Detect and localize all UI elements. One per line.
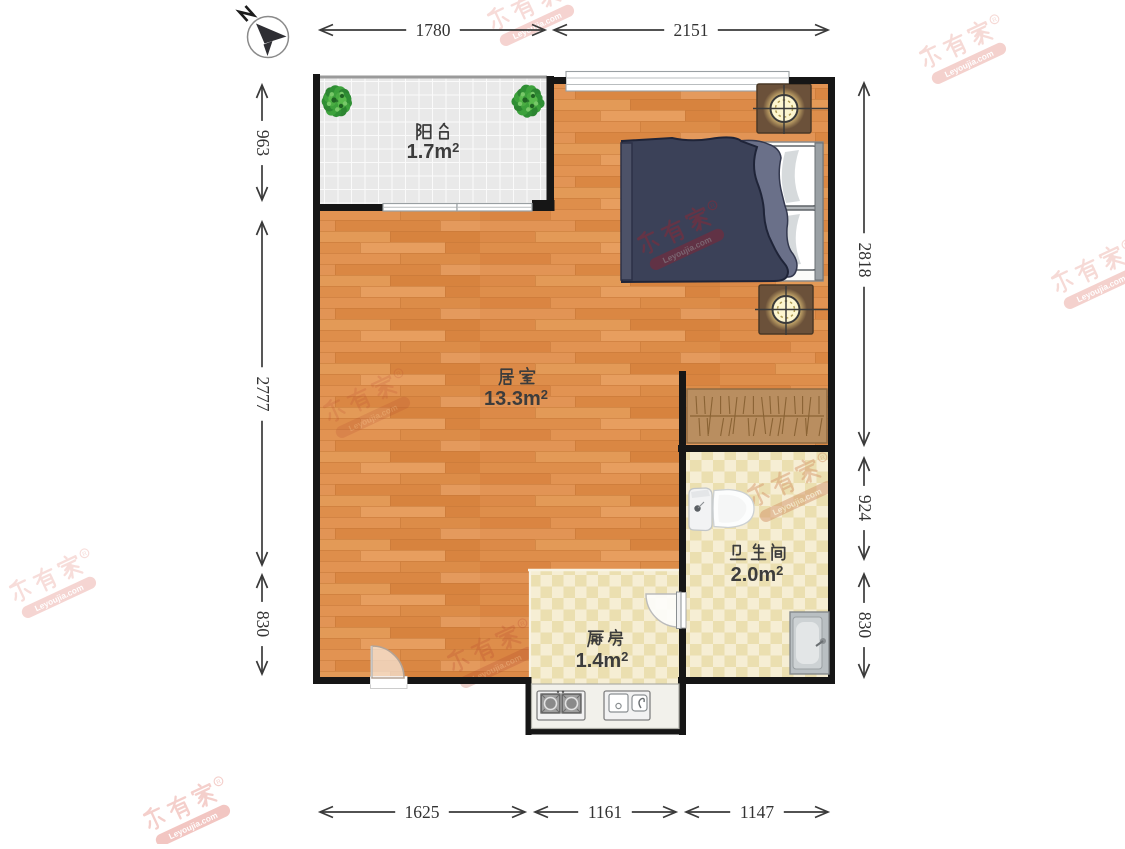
- svg-text:1161: 1161: [588, 802, 622, 822]
- svg-text:1625: 1625: [405, 802, 440, 822]
- svg-text:830: 830: [253, 611, 273, 638]
- svg-text:1780: 1780: [416, 20, 451, 40]
- svg-text:2777: 2777: [253, 377, 273, 412]
- svg-text:2151: 2151: [674, 20, 709, 40]
- svg-text:13.3m2: 13.3m2: [484, 387, 548, 410]
- svg-text:1147: 1147: [740, 802, 775, 822]
- svg-text:2.0m2: 2.0m2: [731, 563, 784, 586]
- svg-text:963: 963: [253, 130, 273, 157]
- svg-text:924: 924: [855, 495, 875, 522]
- svg-text:1.4m2: 1.4m2: [576, 649, 629, 672]
- svg-text:830: 830: [855, 612, 875, 639]
- svg-text:1.7m2: 1.7m2: [407, 140, 460, 163]
- svg-text:2818: 2818: [855, 243, 875, 278]
